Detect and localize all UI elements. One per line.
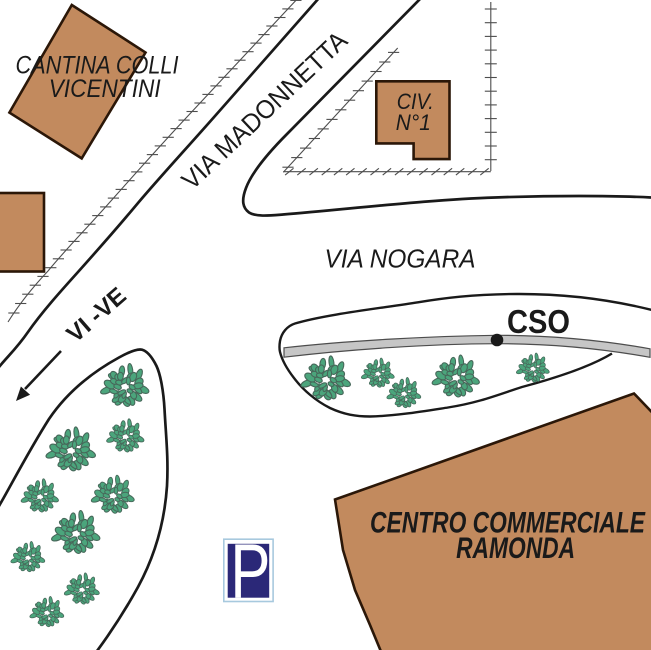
svg-text:VIA NOGARA: VIA NOGARA: [325, 244, 476, 274]
svg-text:N°1: N°1: [396, 110, 431, 135]
svg-text:CSO: CSO: [507, 303, 570, 340]
svg-text:VICENTINI: VICENTINI: [49, 75, 161, 103]
svg-text:RAMONDA: RAMONDA: [456, 532, 575, 565]
svg-text:P: P: [230, 527, 270, 614]
